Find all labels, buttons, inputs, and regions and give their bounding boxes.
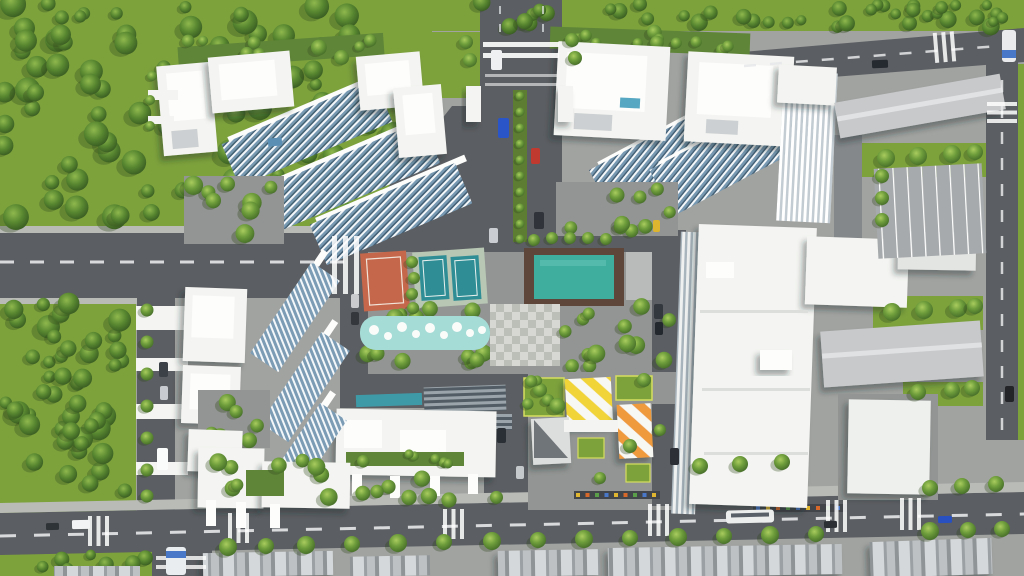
kindergarten-garden xyxy=(578,438,604,458)
truck xyxy=(72,520,90,529)
pool-float xyxy=(452,322,462,332)
roof-seam xyxy=(702,388,810,391)
shop-signs xyxy=(576,493,656,497)
sidewalk-west-road xyxy=(0,226,356,233)
car xyxy=(497,428,506,443)
car xyxy=(872,60,888,69)
bus-stripe xyxy=(1002,50,1016,58)
hall-roof xyxy=(847,399,931,494)
car xyxy=(46,523,59,530)
gate-post xyxy=(558,86,573,122)
tower-roof xyxy=(777,65,837,106)
ac-unit xyxy=(574,113,613,131)
car xyxy=(516,466,524,479)
car xyxy=(160,386,168,400)
link-corridor xyxy=(564,420,618,432)
crosswalk xyxy=(934,46,958,48)
van xyxy=(157,448,168,470)
roof-seam xyxy=(704,452,808,455)
plaza-checker xyxy=(490,304,560,366)
car xyxy=(670,448,679,465)
roof-bulkhead xyxy=(706,262,734,278)
gate-post xyxy=(466,86,481,122)
car-blue xyxy=(938,516,952,523)
pool-float xyxy=(466,329,474,337)
car xyxy=(159,362,168,377)
water-glint xyxy=(540,260,606,266)
pool-float xyxy=(478,326,486,334)
penthouse xyxy=(344,420,382,448)
penthouse xyxy=(219,60,278,101)
stair-core xyxy=(206,500,216,526)
townhouse-row xyxy=(350,555,430,576)
townhouse-row xyxy=(54,566,140,576)
car xyxy=(491,50,502,70)
lap-pool xyxy=(356,393,422,407)
pool-float xyxy=(425,323,435,333)
townhouse-row xyxy=(869,538,992,576)
car xyxy=(1005,386,1014,402)
pool-float xyxy=(440,331,448,339)
car xyxy=(351,294,359,308)
kindergarten-yellow-roof xyxy=(565,377,613,427)
car-red xyxy=(531,148,540,164)
penthouse xyxy=(402,93,435,135)
ac-unit xyxy=(171,129,198,149)
pool-float xyxy=(369,325,379,335)
pool-float xyxy=(412,330,420,338)
car xyxy=(534,212,544,229)
pool-pad xyxy=(626,252,652,300)
roof-bulkhead xyxy=(760,350,792,370)
driveway-warehouse xyxy=(834,135,862,253)
car xyxy=(824,521,837,528)
taxi xyxy=(653,220,660,232)
townhouse-row xyxy=(608,544,842,576)
car xyxy=(655,322,663,335)
townhouse-row xyxy=(498,549,600,576)
rooftop-pool xyxy=(620,97,640,108)
car-blue xyxy=(498,118,509,138)
roof-seam xyxy=(700,310,808,313)
penthouse xyxy=(191,295,234,338)
car xyxy=(654,304,663,319)
penthouse xyxy=(697,62,774,118)
ac-unit xyxy=(706,119,739,135)
car xyxy=(351,312,359,325)
stair-core xyxy=(270,504,280,528)
aerial-masterplan-render xyxy=(0,0,1024,576)
stair-core xyxy=(468,474,478,494)
scene-canvas xyxy=(0,0,1024,576)
parking-lot xyxy=(874,163,987,259)
car xyxy=(489,228,498,243)
pool-float xyxy=(397,322,407,332)
solar-roof xyxy=(424,385,507,414)
bus-stripe xyxy=(166,551,186,558)
rooftop-pool xyxy=(268,137,283,146)
pool-float xyxy=(384,332,392,340)
kindergarten-garden xyxy=(626,464,650,482)
